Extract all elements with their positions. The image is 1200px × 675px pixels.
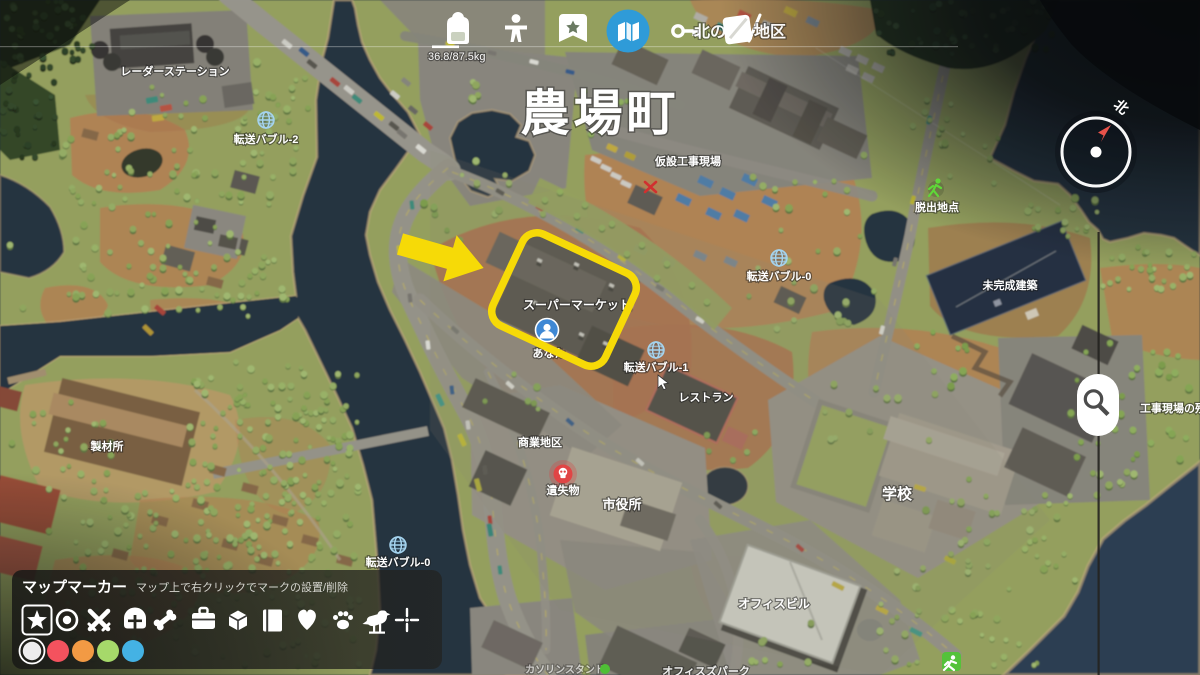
- svg-text:転送バブル-2: 転送バブル-2: [234, 132, 299, 146]
- svg-text:学校: 学校: [882, 485, 913, 503]
- svg-text:仮設工事現場: 仮設工事現場: [654, 154, 721, 168]
- svg-text:36.8/87.5kg: 36.8/87.5kg: [428, 51, 486, 63]
- svg-text:レーダーステーション: レーダーステーション: [120, 64, 229, 78]
- svg-text:転送バブル-0: 転送バブル-0: [366, 555, 431, 569]
- svg-text:オフィスビル: オフィスビル: [738, 596, 810, 611]
- svg-text:転送バブル-1: 転送バブル-1: [624, 360, 689, 374]
- svg-text:商業地区: 商業地区: [518, 435, 562, 449]
- svg-text:遺失物: 遺失物: [546, 483, 580, 497]
- svg-text:農場町: 農場町: [520, 87, 679, 141]
- svg-text:マップ上で右クリックでマークの設置/削除: マップ上で右クリックでマークの設置/削除: [136, 580, 348, 594]
- svg-text:カソリンスタンド: カソリンスタンド: [525, 664, 605, 675]
- svg-text:マップマーカー: マップマーカー: [22, 579, 127, 596]
- svg-text:製材所: 製材所: [90, 439, 124, 453]
- svg-text:北の: 北の: [694, 23, 726, 41]
- svg-text:地区: 地区: [754, 22, 786, 41]
- svg-text:市役所: 市役所: [602, 497, 641, 512]
- svg-text:未完成建築: 未完成建築: [982, 278, 1039, 292]
- svg-text:脱出地点: 脱出地点: [915, 200, 959, 214]
- svg-text:スーパーマーケット: スーパーマーケット: [523, 298, 631, 312]
- svg-text:オフィスズパーク: オフィスズパーク: [662, 664, 750, 675]
- svg-text:転送バブル-0: 転送バブル-0: [747, 269, 812, 283]
- svg-text:レストラン: レストラン: [679, 391, 734, 404]
- svg-text:工事現場の残: 工事現場の残: [1140, 401, 1200, 415]
